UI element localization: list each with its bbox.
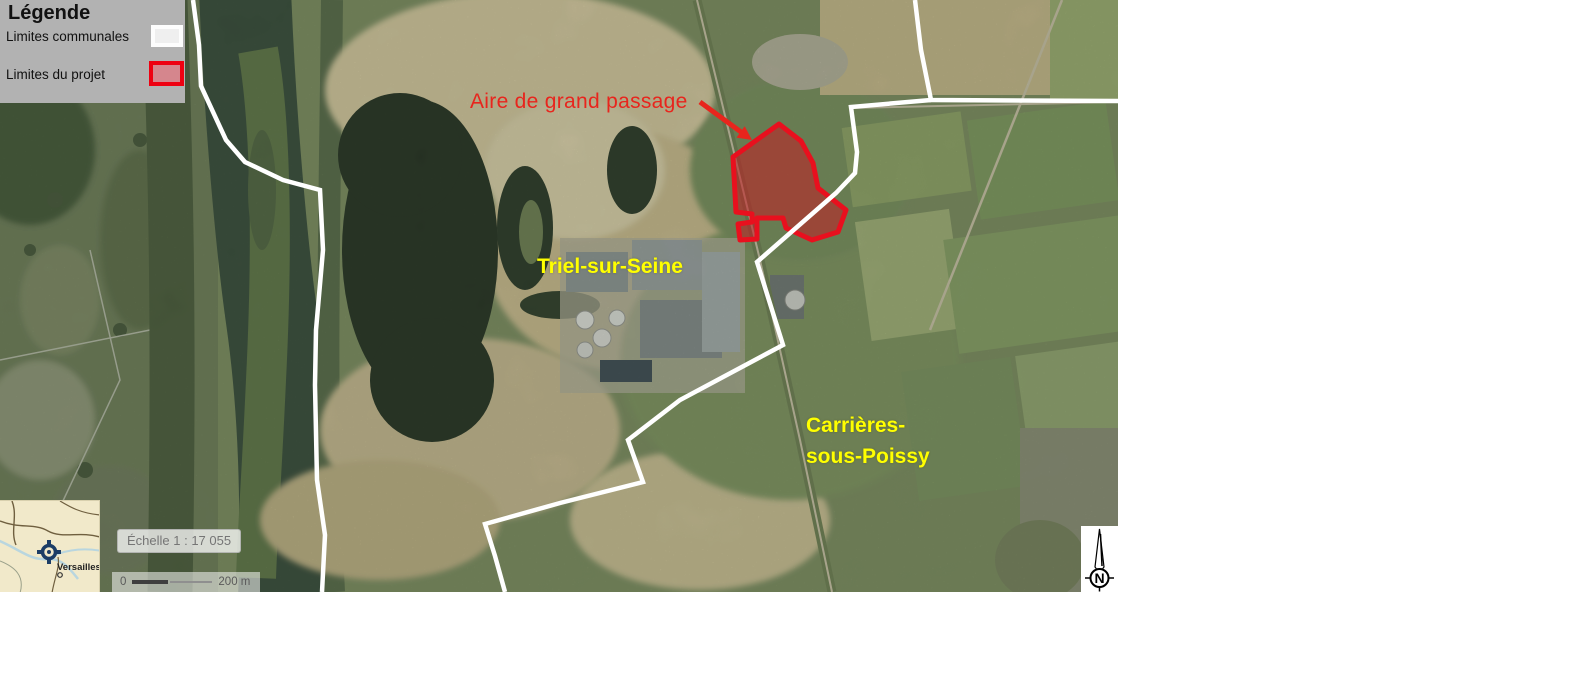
legend-item-project-label: Limites du projet	[6, 67, 105, 82]
north-arrow: N	[1081, 526, 1118, 592]
scale-bar-zero: 0	[120, 576, 126, 588]
city-label-carrieres-line1: Carrières-	[806, 410, 930, 441]
communal-boundary-swatch	[151, 25, 183, 47]
inset-map-graphic	[0, 501, 100, 592]
aerial-map: Aire de grand passage Triel-sur-Seine Ca…	[0, 0, 1118, 592]
city-label-carrieres: Carrières- sous-Poissy	[806, 410, 930, 472]
scale-bar-light-segment	[170, 581, 212, 583]
scale-bar-max: 200 m	[218, 576, 250, 588]
scale-bar-dark-segment	[132, 580, 168, 584]
city-label-carrieres-line2: sous-Poissy	[806, 441, 930, 472]
legend-title: Légende	[8, 2, 90, 25]
project-annotation-label: Aire de grand passage	[470, 90, 688, 114]
legend-item-communal-label: Limites communales	[6, 29, 129, 44]
inset-locator-map: Versailles	[0, 500, 100, 592]
north-arrow-icon: N	[1081, 526, 1118, 592]
scale-bar: 0 200 m	[112, 572, 260, 592]
map-legend: Légende Limites communales Limites du pr…	[0, 0, 185, 103]
project-boundary-swatch	[149, 61, 184, 86]
inset-place-label: Versailles	[57, 562, 100, 573]
scale-ratio-text: Échelle 1 : 17 055	[117, 529, 241, 553]
city-label-triel: Triel-sur-Seine	[537, 255, 683, 279]
north-letter: N	[1094, 570, 1104, 586]
